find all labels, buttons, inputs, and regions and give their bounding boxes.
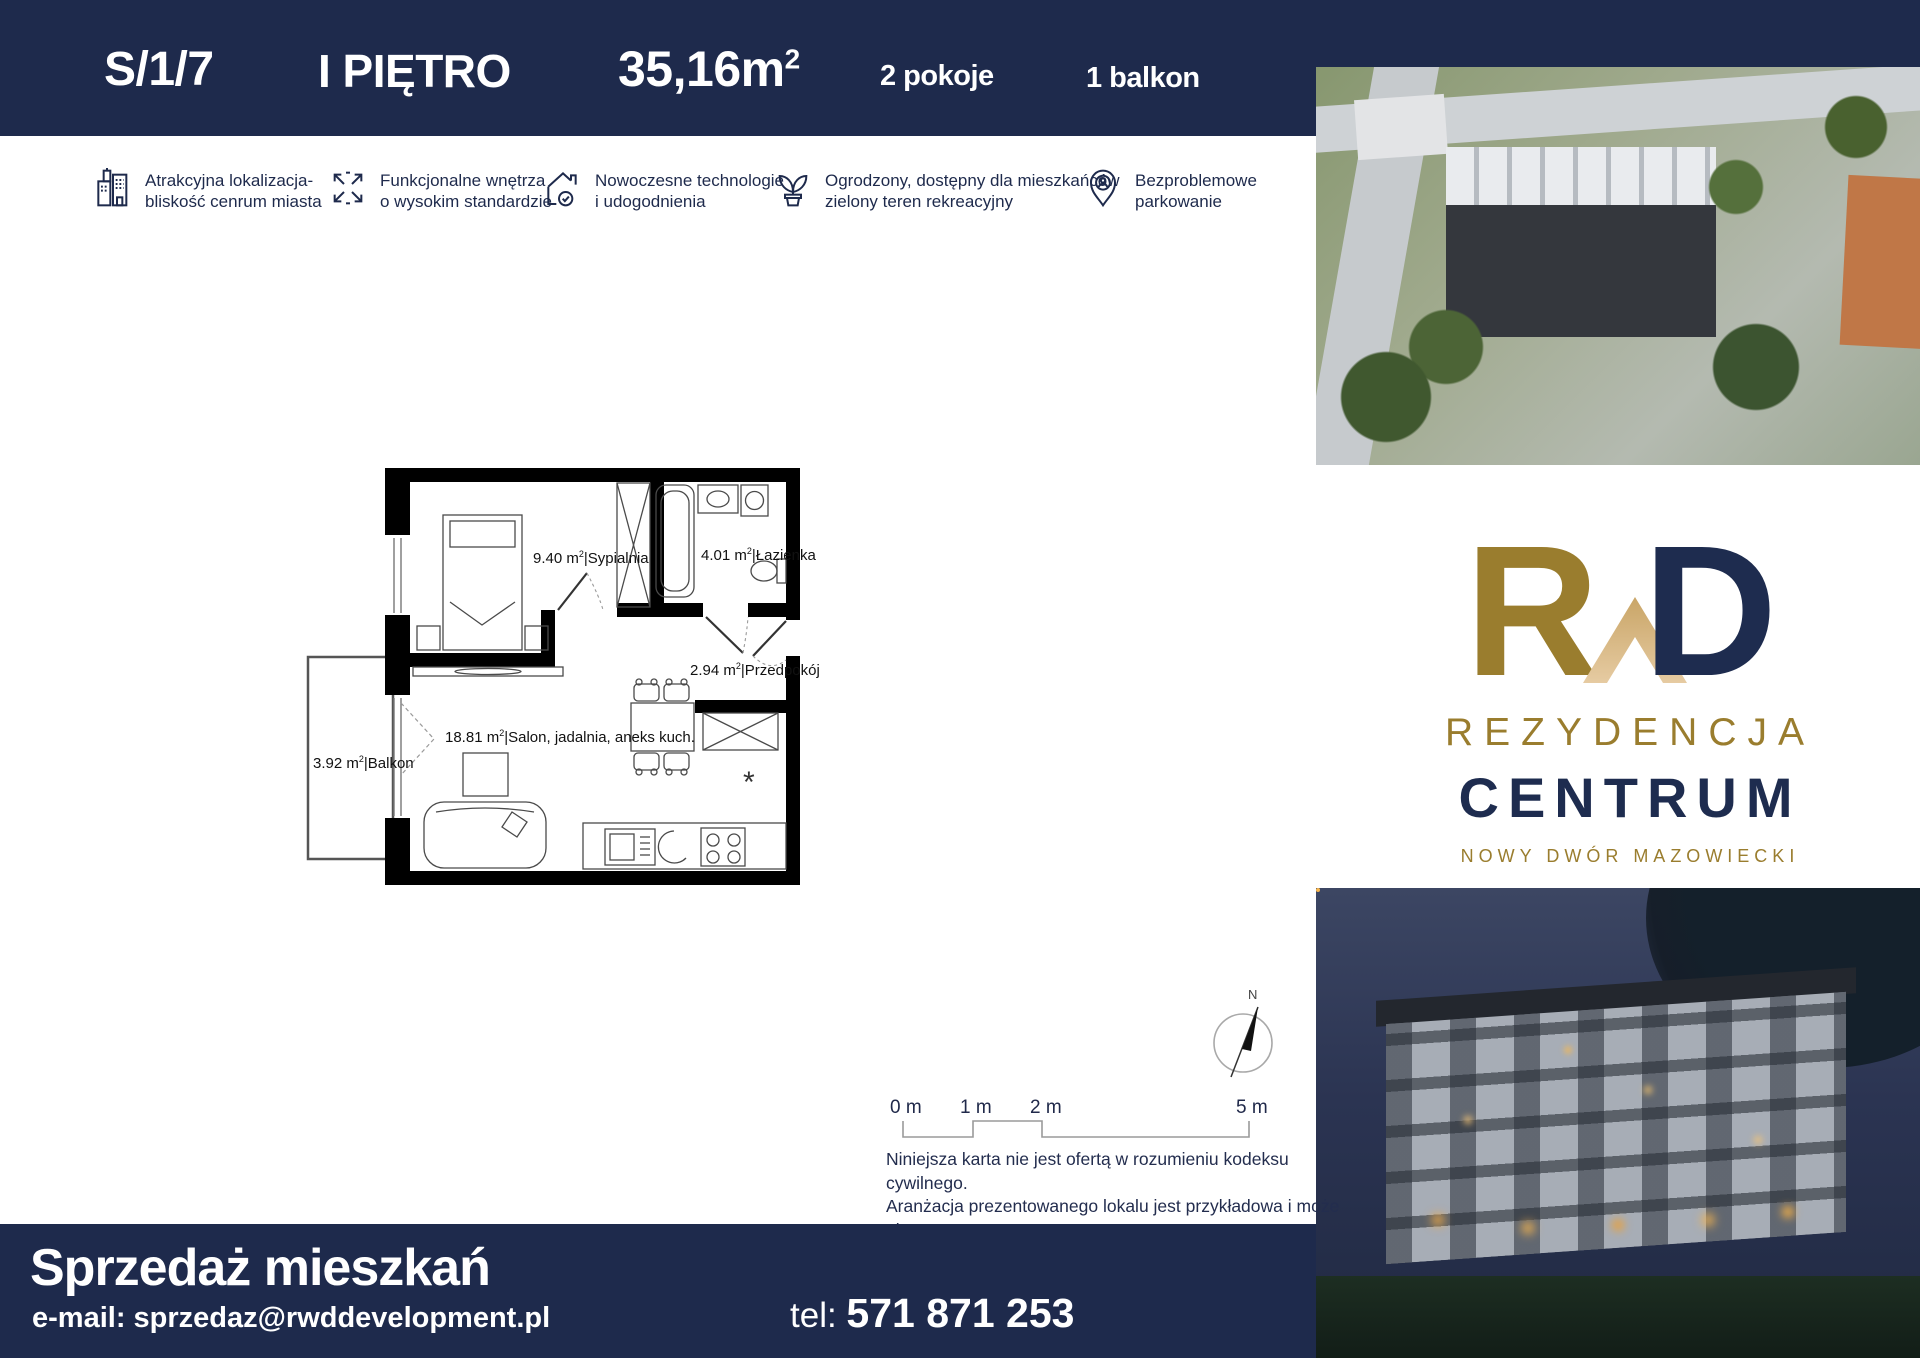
feature-line1: Bezproblemowe — [1135, 170, 1257, 191]
footer-bar: Sprzedaż mieszkań e-mail: sprzedaz@rwdde… — [0, 1224, 1316, 1358]
feature-text: Ogrodzony, dostępny dla mieszkańców ziel… — [825, 168, 1120, 212]
bed — [443, 515, 522, 650]
logo-line-rezydencja: REZYDENCJA — [1400, 711, 1860, 755]
footer-email: e-mail: sprzedaz@rwddevelopment.pl — [32, 1302, 550, 1335]
night-building — [1386, 992, 1846, 1264]
aerial-trees — [1316, 67, 1920, 465]
plant-icon — [775, 168, 811, 208]
buildings-icon — [95, 168, 131, 208]
feature-line1: Atrakcyjna lokalizacja- — [145, 170, 322, 191]
scale-label-5: 5 m — [1236, 1097, 1268, 1118]
room-name: Balkon — [368, 755, 414, 772]
sink — [698, 485, 738, 513]
feature-green-area: Ogrodzony, dostępny dla mieszkańców ziel… — [775, 168, 1120, 212]
toilet — [751, 561, 777, 581]
kitchen-round — [658, 831, 686, 863]
coffee-table — [463, 753, 508, 796]
phone-number: 571 871 253 — [846, 1290, 1074, 1336]
room-label-lazienka: 4.01 m2|Łazienka — [701, 546, 816, 564]
feature-line2: i udogodnienia — [595, 191, 784, 212]
logo-line-centrum: CENTRUM — [1400, 765, 1860, 830]
floor-label: I PIĘTRO — [318, 44, 511, 98]
sofa — [424, 802, 546, 868]
room-label-balkon: 3.92 m2|Balkon — [313, 754, 414, 772]
parking-pin-icon — [1085, 168, 1121, 208]
room-area: 9.40 m — [533, 550, 579, 567]
aerial-photo — [1316, 67, 1920, 465]
house-check-icon — [545, 168, 581, 208]
feature-parking: Bezproblemowe parkowanie — [1085, 168, 1257, 212]
night-lights — [1316, 888, 1320, 892]
logo-letter-d: D — [1643, 535, 1777, 685]
feature-interiors: Funkcjonalne wnętrza o wysokim standardz… — [330, 168, 552, 212]
feature-line1: Funkcjonalne wnętrza — [380, 170, 552, 191]
night-render-photo — [1316, 888, 1920, 1358]
feature-line1: Nowoczesne technologie — [595, 170, 784, 191]
room-area: 2.94 m — [690, 662, 736, 679]
floor-plan: * 9.40 m2|Sypialnia 4.01 m2|Łazienka 2.9… — [300, 460, 960, 900]
scale-label-2: 2 m — [1030, 1097, 1062, 1118]
room-name: Salon, jadalnia, aneks kuch. — [508, 729, 695, 746]
pillow — [502, 812, 527, 837]
unit-number: S/1/7 — [104, 42, 214, 97]
scale-bar: 0 m 1 m 2 m 5 m — [880, 1095, 1280, 1150]
area-value: 35,16m2 — [618, 40, 800, 98]
feature-location: Atrakcyjna lokalizacja- bliskość cenrum … — [95, 168, 322, 212]
scale-line — [903, 1121, 1249, 1137]
phone-label: tel: — [790, 1296, 846, 1335]
feature-line2: zielony teren rekreacyjny — [825, 191, 1120, 212]
room-name: Przedpokój — [745, 662, 820, 679]
compass-north-label: N — [1248, 987, 1257, 1002]
room-name: Łazienka — [756, 547, 817, 564]
feature-technology: Nowoczesne technologie i udogodnienia — [545, 168, 784, 212]
room-label-sypialnia: 9.40 m2|Sypialnia — [533, 549, 649, 567]
room-name: Sypialnia — [588, 550, 650, 567]
feature-text: Nowoczesne technologie i udogodnienia — [595, 168, 784, 212]
room-label-salon: 18.81 m2|Salon, jadalnia, aneks kuch. — [445, 728, 695, 746]
footer-title: Sprzedaż mieszkań — [30, 1238, 490, 1298]
feature-text: Bezproblemowe parkowanie — [1135, 168, 1257, 212]
footer-phone: tel: 571 871 253 — [790, 1290, 1074, 1337]
feature-text: Atrakcyjna lokalizacja- bliskość cenrum … — [145, 168, 322, 212]
fridge-mark: * — [743, 766, 755, 799]
feature-line1: Ogrodzony, dostępny dla mieszkańców — [825, 170, 1120, 191]
logo-line-city: NOWY DWÓR MAZOWIECKI — [1400, 846, 1860, 867]
room-area: 4.01 m — [701, 547, 747, 564]
balcony-count: 1 balkon — [1086, 62, 1200, 95]
compass-circle — [1214, 1014, 1272, 1072]
compass: N — [1198, 985, 1288, 1085]
area-superscript: 2 — [785, 43, 800, 74]
apartment-card: S/1/7 I PIĘTRO 35,16m2 2 pokoje 1 balkon… — [0, 0, 1920, 1358]
feature-line2: bliskość cenrum miasta — [145, 191, 322, 212]
feature-line2: o wysokim standardzie — [380, 191, 552, 212]
expand-arrows-icon — [330, 168, 366, 208]
feature-line2: parkowanie — [1135, 191, 1257, 212]
room-area: 18.81 m — [445, 729, 499, 746]
scale-label-0: 0 m — [890, 1097, 922, 1118]
feature-text: Funkcjonalne wnętrza o wysokim standardz… — [380, 168, 552, 212]
rwd-monogram: R D — [1465, 535, 1795, 685]
disclaimer-line: Niniejsza karta nie jest ofertą w rozumi… — [886, 1148, 1366, 1195]
scale-label-1: 1 m — [960, 1097, 992, 1118]
room-area: 3.92 m — [313, 755, 359, 772]
compass-needle-line — [1231, 1007, 1258, 1077]
room-label-przedpokoj: 2.94 m2|Przedpokój — [690, 661, 820, 679]
area-number: 35,16m — [618, 41, 785, 97]
developer-logo: R D REZYDENCJA CENTRUM NOWY DWÓR MAZOWIE… — [1400, 535, 1860, 867]
logo-letter-r: R — [1465, 535, 1599, 685]
night-ground — [1316, 1276, 1920, 1358]
rooms-count: 2 pokoje — [880, 60, 994, 93]
kitchen-counter — [583, 823, 786, 869]
